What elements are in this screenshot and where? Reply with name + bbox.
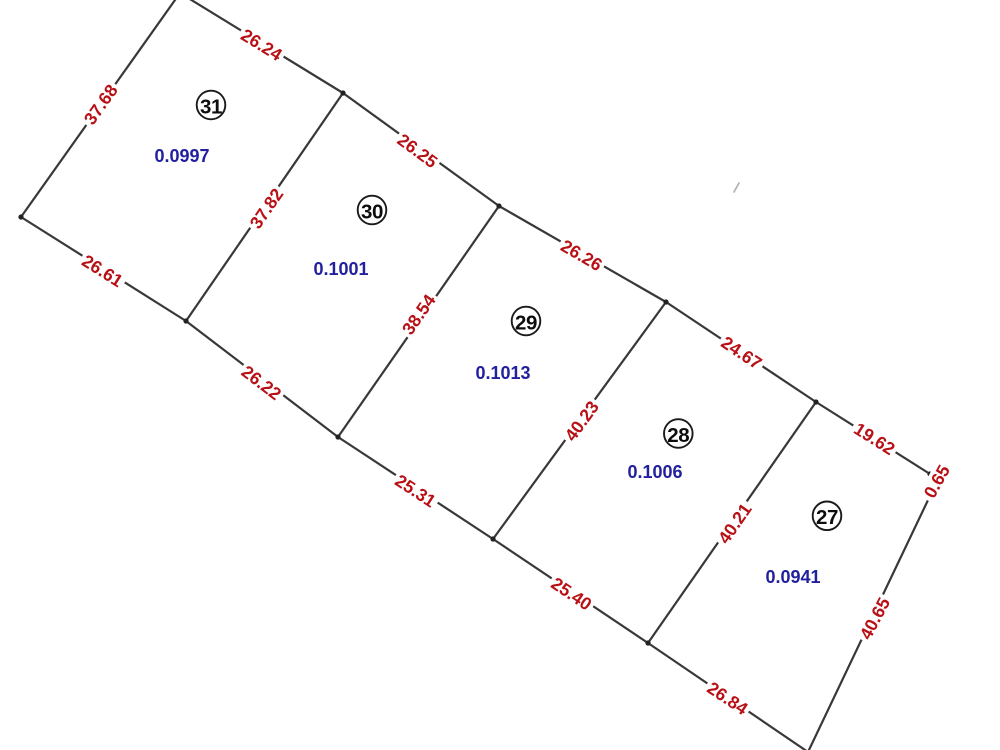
svg-text:28: 28 — [667, 424, 689, 447]
svg-text:0.1013: 0.1013 — [475, 363, 530, 383]
svg-text:0.0997: 0.0997 — [154, 146, 209, 166]
svg-text:29: 29 — [515, 311, 537, 334]
svg-text:0.1001: 0.1001 — [313, 259, 368, 279]
svg-text:31: 31 — [200, 95, 222, 118]
svg-text:30: 30 — [361, 200, 383, 223]
svg-text:27: 27 — [816, 506, 838, 529]
svg-text:0.0941: 0.0941 — [765, 567, 820, 587]
svg-text:0.1006: 0.1006 — [627, 462, 682, 482]
